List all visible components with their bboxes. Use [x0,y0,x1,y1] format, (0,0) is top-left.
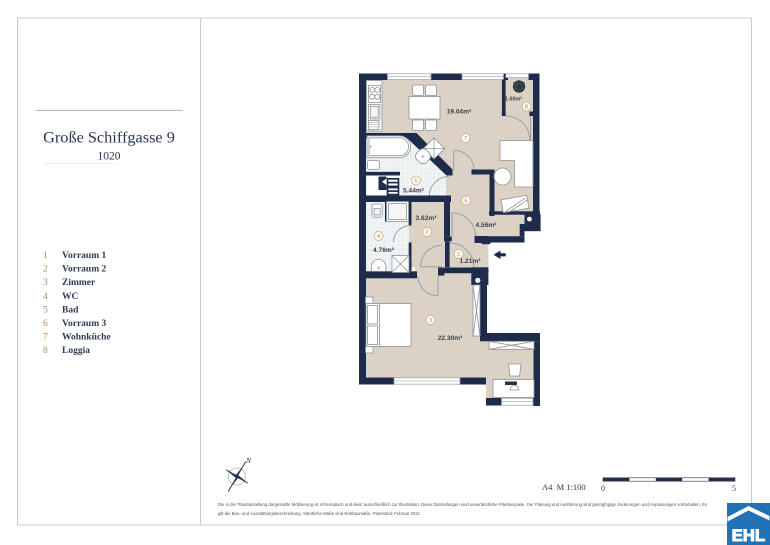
svg-text:8: 8 [43,346,48,356]
svg-text:1: 1 [457,252,460,258]
svg-text:1: 1 [43,251,48,261]
svg-text:1.21m²: 1.21m² [460,258,482,265]
svg-text:7: 7 [43,333,48,343]
svg-text:4.76m²: 4.76m² [373,247,395,254]
svg-text:Vorraum 1: Vorraum 1 [62,251,106,261]
svg-text:19.04m²: 19.04m² [447,109,472,116]
svg-text:3: 3 [43,278,48,288]
svg-text:5: 5 [43,305,48,315]
svg-text:Zimmer: Zimmer [62,278,96,288]
svg-text:3: 3 [429,318,432,324]
svg-text:1.60m²: 1.60m² [505,97,522,103]
svg-text:Vorraum 3: Vorraum 3 [62,319,106,329]
svg-text:Vorraum 2: Vorraum 2 [62,265,106,275]
svg-text:WC: WC [62,292,79,302]
svg-text:8: 8 [525,105,528,111]
svg-text:6: 6 [464,199,467,205]
svg-text:7: 7 [464,136,467,142]
svg-text:2: 2 [425,230,428,236]
svg-text:A4 M 1:100: A4 M 1:100 [542,482,586,492]
svg-text:22.30m²: 22.30m² [438,335,463,342]
svg-text:EHL: EHL [732,527,766,545]
svg-text:5: 5 [732,484,736,493]
svg-text:4.56m²: 4.56m² [476,222,498,229]
svg-text:Loggia: Loggia [62,346,90,356]
svg-text:Wohnküche: Wohnküche [62,333,111,343]
svg-text:1020: 1020 [98,151,121,163]
svg-text:6: 6 [43,319,48,329]
svg-text:Große Schiffgasse 9: Große Schiffgasse 9 [43,128,175,147]
svg-text:5.44m²: 5.44m² [403,188,425,195]
svg-text:5: 5 [414,179,417,185]
svg-text:N: N [245,456,252,465]
svg-text:2: 2 [43,265,48,275]
svg-text:4: 4 [43,292,48,302]
svg-text:gilt die Bau- und Ausstattungs: gilt die Bau- und Ausstattungsbeschreibu… [218,511,421,516]
svg-text:Bad: Bad [62,305,79,315]
svg-text:3.62m²: 3.62m² [416,215,438,222]
svg-text:Die in der Plandarstellung dar: Die in der Plandarstellung dargestellte … [218,502,707,507]
svg-text:0: 0 [601,484,605,493]
